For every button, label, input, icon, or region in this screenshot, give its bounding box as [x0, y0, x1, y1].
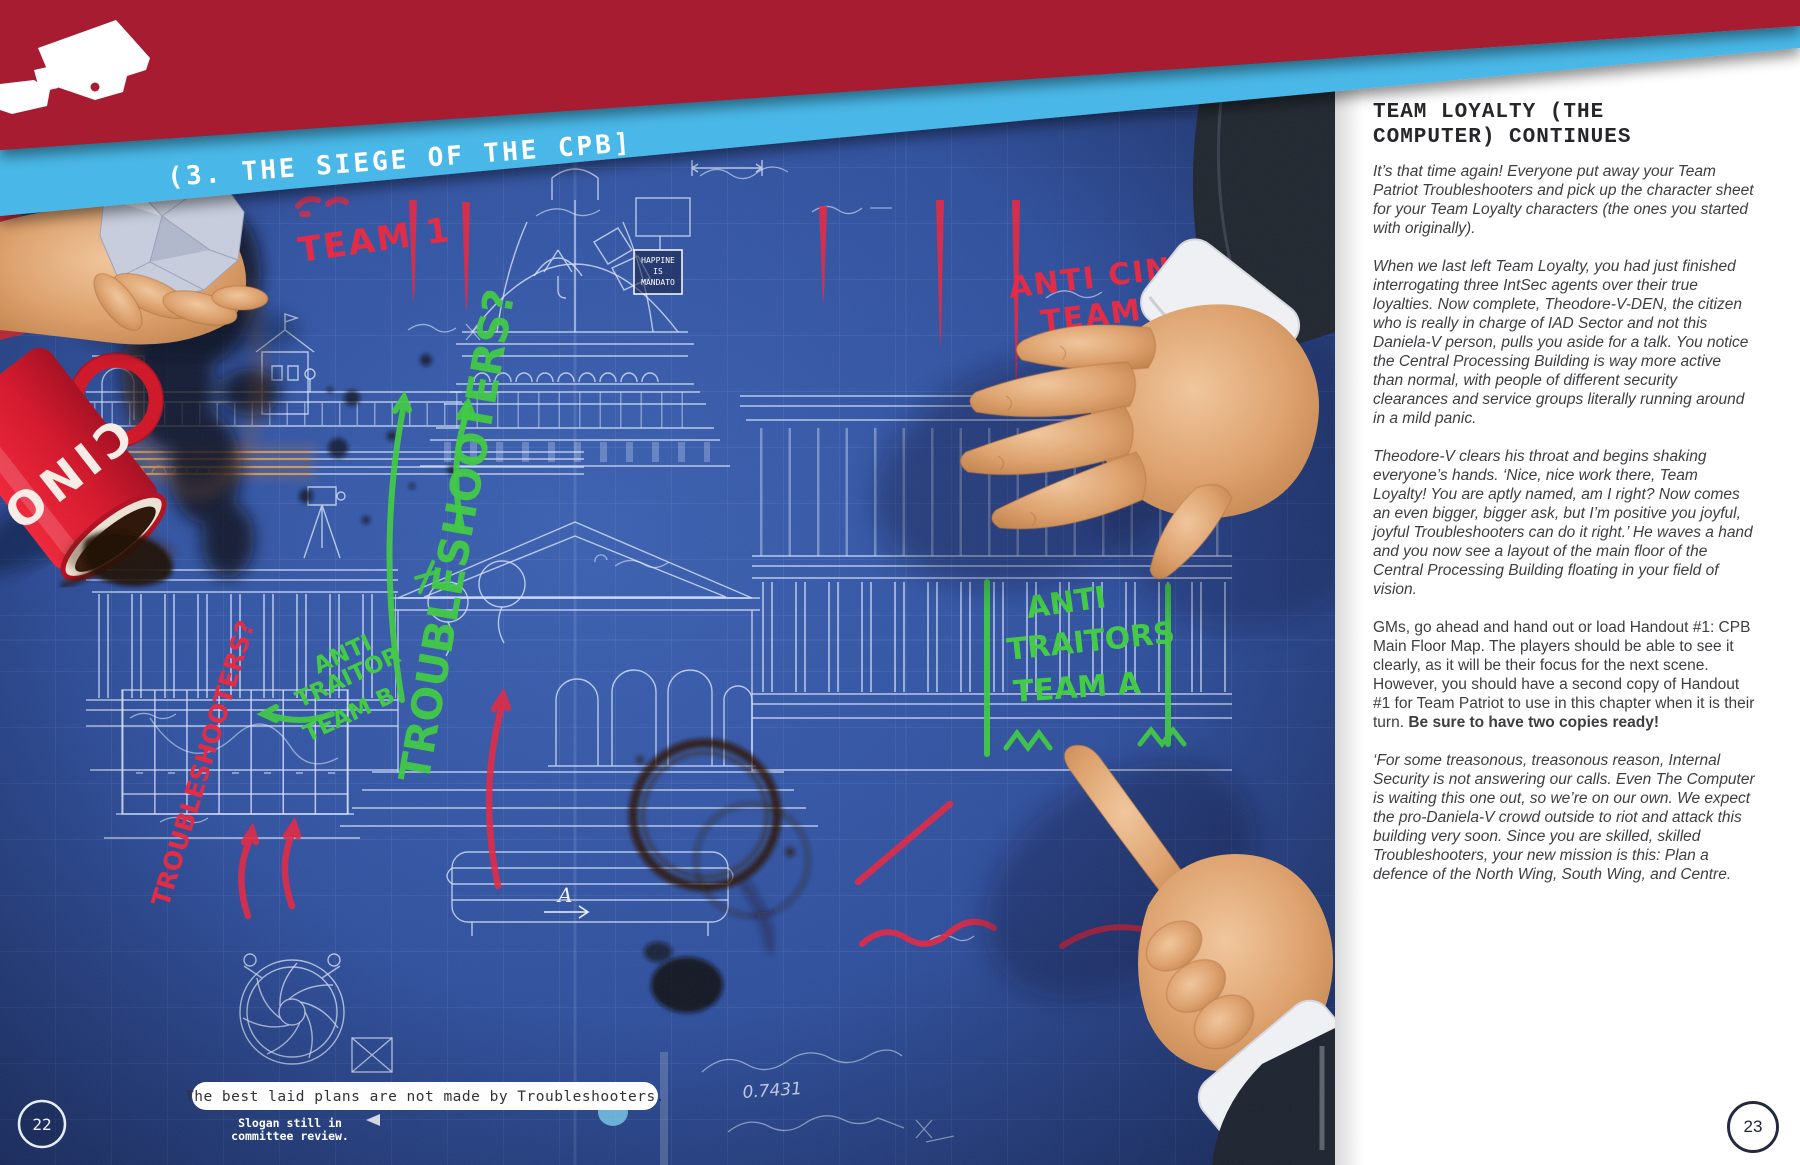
book-spread: HAPPINE IS MANDATO A 0.7431: [0, 0, 1800, 1165]
paragraph-theodore: Theodore-V clears his throat and begins …: [1373, 447, 1755, 599]
paragraph-recap: When we last left Team Loyalty, you had …: [1373, 257, 1755, 428]
page-number-23: 23: [1727, 1101, 1779, 1153]
paragraph-gm-note: GMs, go ahead and hand out or load Hando…: [1373, 618, 1755, 732]
chapter-banner: (3. THE SIEGE OF THE CPB]: [0, 0, 1800, 250]
paragraph-mission: ‘For some treasonous, treasonous reason,…: [1373, 751, 1755, 884]
page-number-23-label: 23: [1744, 1117, 1763, 1137]
gm-note-bold: Be sure to have two copies ready!: [1408, 714, 1659, 731]
